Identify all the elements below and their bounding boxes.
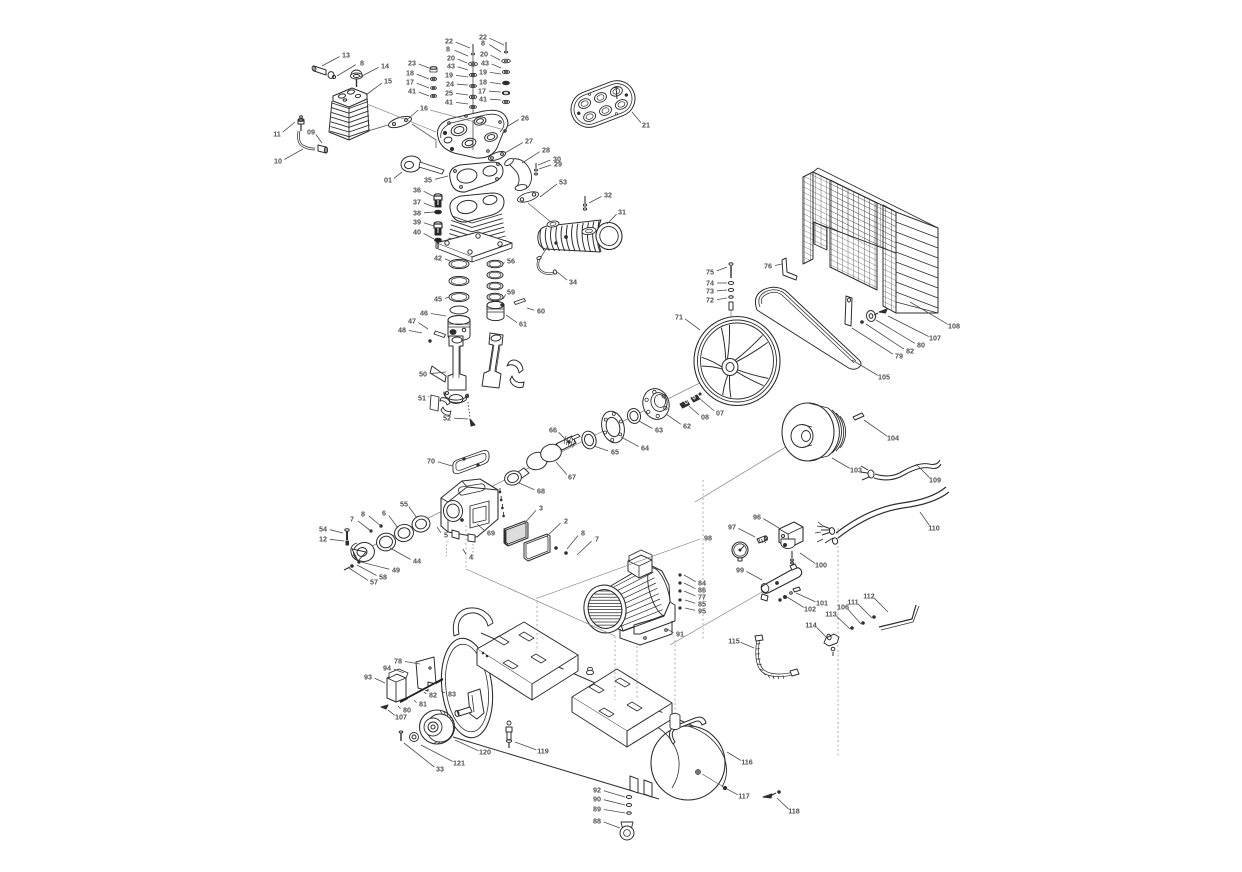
svg-text:48: 48 xyxy=(398,326,406,335)
svg-text:23: 23 xyxy=(408,59,416,68)
svg-text:38: 38 xyxy=(413,209,421,218)
svg-text:39: 39 xyxy=(413,218,421,227)
svg-text:110: 110 xyxy=(928,524,940,533)
svg-text:55: 55 xyxy=(400,500,408,509)
svg-text:40: 40 xyxy=(413,228,421,237)
svg-text:75: 75 xyxy=(706,268,714,277)
svg-text:25: 25 xyxy=(445,89,453,98)
svg-text:32: 32 xyxy=(604,191,612,200)
svg-text:44: 44 xyxy=(413,557,421,566)
svg-text:59: 59 xyxy=(507,288,515,297)
svg-text:73: 73 xyxy=(706,287,714,296)
svg-text:5: 5 xyxy=(444,531,448,540)
svg-text:09: 09 xyxy=(307,128,315,137)
svg-text:11: 11 xyxy=(273,130,281,139)
svg-text:10: 10 xyxy=(274,157,282,166)
svg-text:43: 43 xyxy=(447,62,455,71)
svg-text:111: 111 xyxy=(847,598,858,607)
svg-text:81: 81 xyxy=(419,700,427,709)
svg-text:98: 98 xyxy=(704,534,712,543)
svg-text:118: 118 xyxy=(788,807,800,816)
svg-text:41: 41 xyxy=(479,95,487,104)
svg-text:69: 69 xyxy=(487,529,495,538)
svg-text:26: 26 xyxy=(521,114,529,123)
svg-text:8: 8 xyxy=(481,39,485,48)
svg-text:41: 41 xyxy=(445,98,453,107)
svg-text:8: 8 xyxy=(446,45,450,54)
svg-text:52: 52 xyxy=(443,414,451,423)
svg-text:119: 119 xyxy=(537,747,549,756)
svg-text:16: 16 xyxy=(420,104,428,113)
svg-text:108: 108 xyxy=(948,322,960,331)
svg-text:61: 61 xyxy=(519,320,527,329)
svg-text:20: 20 xyxy=(480,50,488,59)
svg-text:17: 17 xyxy=(406,78,414,87)
svg-text:80: 80 xyxy=(917,341,925,350)
svg-text:53: 53 xyxy=(559,178,567,187)
svg-text:107: 107 xyxy=(395,713,407,722)
svg-text:19: 19 xyxy=(445,71,453,80)
svg-text:4: 4 xyxy=(469,553,473,562)
svg-text:91: 91 xyxy=(676,630,684,639)
svg-text:46: 46 xyxy=(420,309,428,318)
svg-text:117: 117 xyxy=(738,792,750,801)
svg-text:79: 79 xyxy=(895,352,903,361)
svg-text:105: 105 xyxy=(878,373,890,382)
svg-text:99: 99 xyxy=(736,566,744,575)
svg-text:103: 103 xyxy=(850,466,862,475)
svg-text:14: 14 xyxy=(381,62,389,71)
svg-text:72: 72 xyxy=(706,296,714,305)
svg-text:41: 41 xyxy=(408,87,416,96)
svg-text:97: 97 xyxy=(728,523,736,532)
svg-text:88: 88 xyxy=(593,817,601,826)
svg-text:18: 18 xyxy=(406,69,414,78)
svg-text:15: 15 xyxy=(384,77,392,86)
svg-text:01: 01 xyxy=(384,176,392,185)
svg-text:107: 107 xyxy=(929,334,941,343)
svg-text:82: 82 xyxy=(429,691,437,700)
svg-text:96: 96 xyxy=(753,513,761,522)
svg-text:08: 08 xyxy=(701,413,709,422)
svg-text:76: 76 xyxy=(764,262,772,271)
svg-text:104: 104 xyxy=(887,434,899,443)
svg-text:92: 92 xyxy=(593,786,601,795)
svg-text:121: 121 xyxy=(453,759,465,768)
svg-text:94: 94 xyxy=(383,664,391,673)
svg-text:45: 45 xyxy=(434,295,442,304)
svg-text:28: 28 xyxy=(542,146,550,155)
svg-text:13: 13 xyxy=(342,51,350,60)
svg-text:51: 51 xyxy=(418,394,426,403)
svg-text:19: 19 xyxy=(479,68,487,77)
svg-text:109: 109 xyxy=(929,476,941,485)
svg-text:31: 31 xyxy=(618,208,626,217)
svg-text:63: 63 xyxy=(655,426,663,435)
svg-text:116: 116 xyxy=(741,758,753,767)
svg-text:114: 114 xyxy=(805,621,817,630)
svg-text:102: 102 xyxy=(804,605,816,614)
svg-text:35: 35 xyxy=(424,176,432,185)
svg-text:115: 115 xyxy=(728,637,740,646)
svg-text:100: 100 xyxy=(815,561,827,570)
svg-text:65: 65 xyxy=(611,448,619,457)
svg-text:8: 8 xyxy=(361,510,365,519)
svg-text:66: 66 xyxy=(549,426,557,435)
svg-text:37: 37 xyxy=(413,198,421,207)
svg-text:120: 120 xyxy=(479,748,491,757)
svg-text:82: 82 xyxy=(906,347,914,356)
svg-text:93: 93 xyxy=(364,673,372,682)
svg-text:7: 7 xyxy=(595,535,599,544)
svg-text:49: 49 xyxy=(392,566,400,575)
svg-text:6: 6 xyxy=(382,509,386,518)
svg-text:50: 50 xyxy=(419,370,427,379)
svg-text:89: 89 xyxy=(593,805,601,814)
svg-text:101: 101 xyxy=(816,599,828,608)
svg-text:67: 67 xyxy=(568,473,576,482)
svg-text:95: 95 xyxy=(698,607,706,616)
svg-text:18: 18 xyxy=(479,78,487,87)
svg-text:78: 78 xyxy=(394,657,402,666)
svg-text:83: 83 xyxy=(448,690,456,699)
svg-text:24: 24 xyxy=(446,80,454,89)
svg-text:54: 54 xyxy=(319,525,327,534)
svg-text:58: 58 xyxy=(379,573,387,582)
svg-text:64: 64 xyxy=(641,444,649,453)
svg-text:70: 70 xyxy=(427,457,435,466)
svg-text:3: 3 xyxy=(539,504,543,513)
svg-text:36: 36 xyxy=(413,186,421,195)
svg-text:90: 90 xyxy=(593,795,601,804)
svg-text:57: 57 xyxy=(370,578,378,587)
svg-text:29: 29 xyxy=(554,160,562,169)
svg-text:2: 2 xyxy=(564,517,568,526)
svg-text:43: 43 xyxy=(481,59,489,68)
svg-text:71: 71 xyxy=(675,313,683,322)
svg-text:112: 112 xyxy=(863,592,875,601)
svg-text:56: 56 xyxy=(507,257,515,266)
svg-text:47: 47 xyxy=(408,317,416,326)
svg-text:113: 113 xyxy=(825,610,837,619)
svg-text:34: 34 xyxy=(569,278,577,287)
svg-text:8: 8 xyxy=(581,529,585,538)
svg-text:07: 07 xyxy=(716,409,724,418)
svg-text:68: 68 xyxy=(537,487,545,496)
svg-text:27: 27 xyxy=(525,137,533,146)
svg-text:62: 62 xyxy=(683,422,691,431)
svg-text:33: 33 xyxy=(436,765,444,774)
svg-text:60: 60 xyxy=(537,307,545,316)
svg-text:7: 7 xyxy=(350,515,354,524)
svg-text:8: 8 xyxy=(360,59,364,68)
svg-text:12: 12 xyxy=(319,535,327,544)
svg-text:42: 42 xyxy=(434,254,442,263)
svg-text:21: 21 xyxy=(642,121,650,130)
